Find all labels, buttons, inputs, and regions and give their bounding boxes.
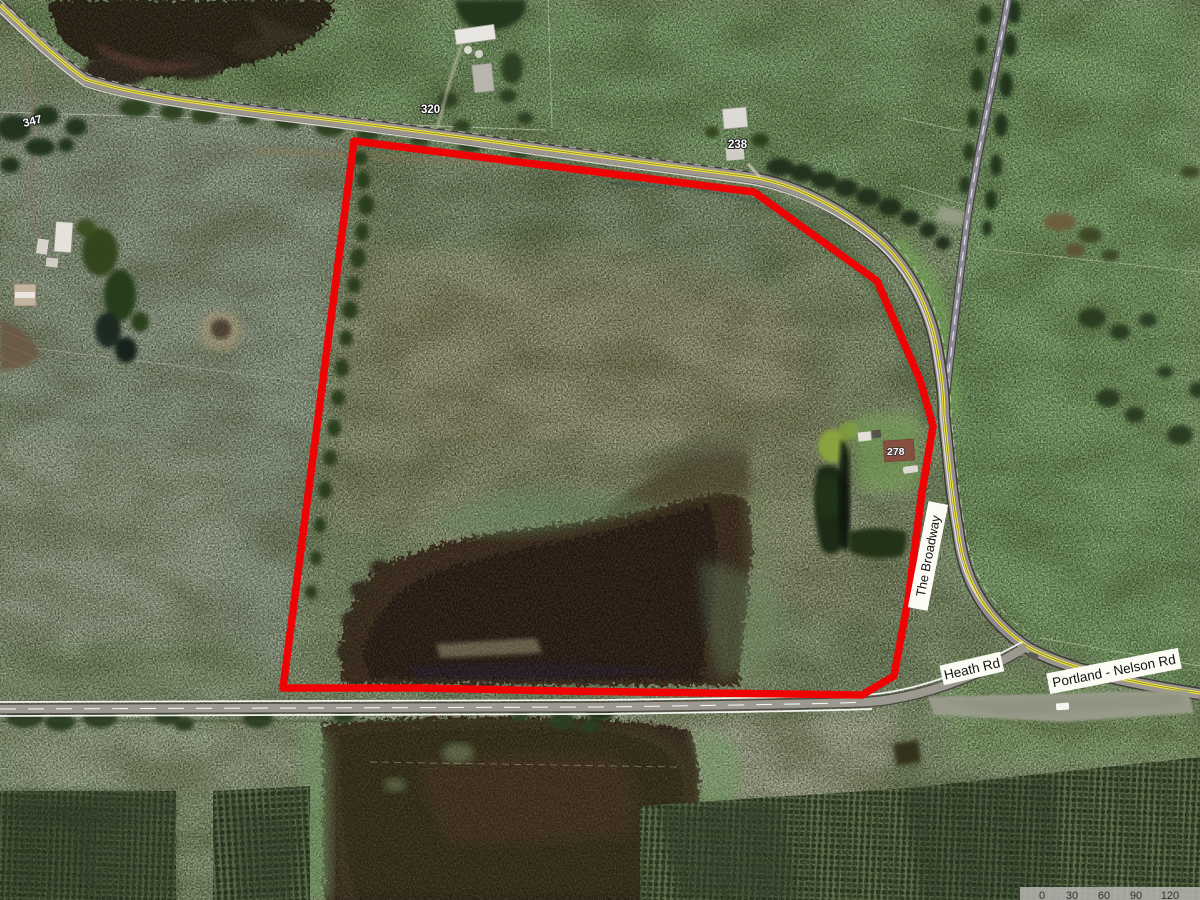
svg-text:0: 0 <box>1039 890 1045 900</box>
svg-text:320: 320 <box>421 104 440 116</box>
svg-text:60: 60 <box>1098 890 1110 900</box>
svg-text:90: 90 <box>1130 890 1142 900</box>
svg-text:30: 30 <box>1066 890 1078 900</box>
svg-text:120: 120 <box>1161 890 1179 900</box>
svg-text:278: 278 <box>887 446 905 458</box>
svg-text:238: 238 <box>728 139 748 151</box>
